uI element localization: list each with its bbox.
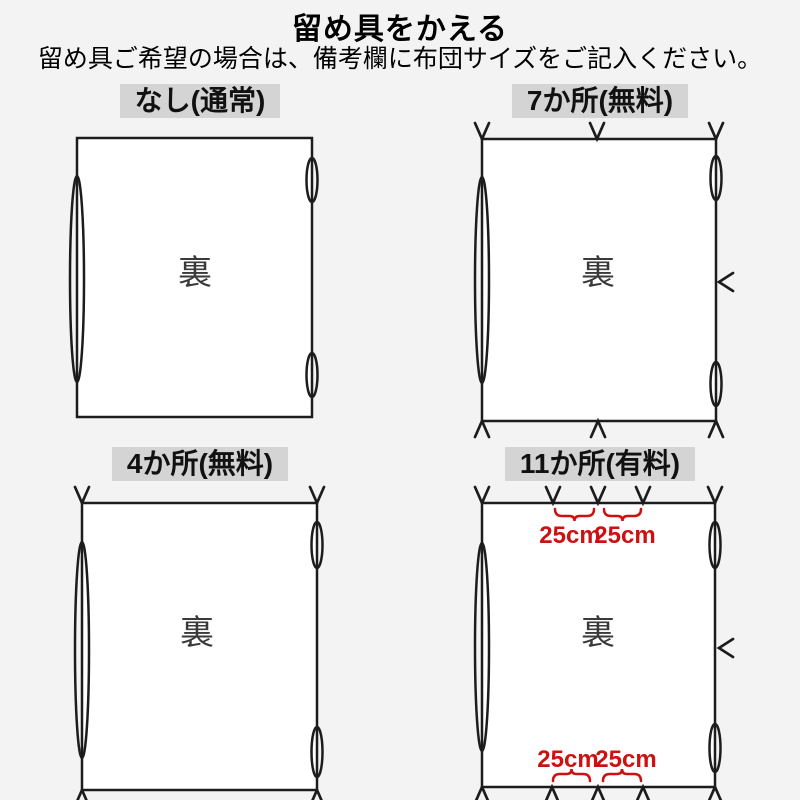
fastener-mark-icon	[475, 421, 489, 437]
panel-label: 4か所(無料)	[112, 447, 288, 481]
fastener-mark-icon	[75, 487, 89, 503]
fastener-mark-icon	[545, 787, 559, 800]
panel-header-none-normal: なし(通常)	[0, 84, 400, 118]
diagram-11-places-paid: 25cm 25cm 25cm 25cm 裏	[400, 440, 800, 800]
fastener-mark-icon	[708, 487, 722, 503]
panel-label: 11か所(有料)	[505, 447, 695, 481]
back-side-label: 裏	[581, 614, 615, 652]
fastener-mark-icon	[719, 639, 733, 657]
panel-header-11-places-paid: 11か所(有料)	[400, 447, 800, 481]
fastener-mark-icon	[709, 123, 723, 139]
back-side-label: 裏	[581, 254, 615, 292]
dimension-label: 25cm	[594, 522, 655, 549]
panel-header-4-places-free: 4か所(無料)	[0, 447, 400, 481]
fastener-mark-icon	[591, 787, 605, 800]
diagram-none-normal: 裏	[0, 80, 400, 440]
panel-label: 7か所(無料)	[512, 84, 688, 118]
fastener-mark-icon	[546, 487, 560, 503]
fastener-mark-icon	[310, 790, 324, 800]
fastener-mark-icon	[75, 790, 89, 800]
fastener-mark-icon	[636, 787, 650, 800]
panel-label: なし(通常)	[120, 84, 281, 118]
diagram-4-places-free: 裏	[0, 440, 400, 800]
fastener-mark-icon	[636, 487, 650, 503]
dimension-label: 25cm	[595, 746, 656, 773]
fastener-mark-icon	[708, 787, 722, 800]
page-subtitle: 留め具ご希望の場合は、備考欄に布団サイズをご記入ください。	[0, 39, 800, 75]
fastener-mark-icon	[310, 487, 324, 503]
fastener-mark-icon	[719, 273, 733, 291]
fastener-mark-icon	[709, 421, 723, 437]
panel-header-7-places-free: 7か所(無料)	[400, 84, 800, 118]
dimension-label: 25cm	[539, 522, 600, 549]
fastener-mark-icon	[475, 787, 489, 800]
fastener-mark-icon	[591, 421, 605, 437]
back-side-label: 裏	[178, 254, 212, 292]
fastener-mark-icon	[590, 123, 604, 139]
diagram-7-places-free: 裏	[400, 80, 800, 440]
back-side-label: 裏	[180, 614, 214, 652]
fastener-mark-icon	[591, 487, 605, 503]
dimension-label: 25cm	[537, 746, 598, 773]
fastener-mark-icon	[475, 123, 489, 139]
fastener-mark-icon	[475, 487, 489, 503]
